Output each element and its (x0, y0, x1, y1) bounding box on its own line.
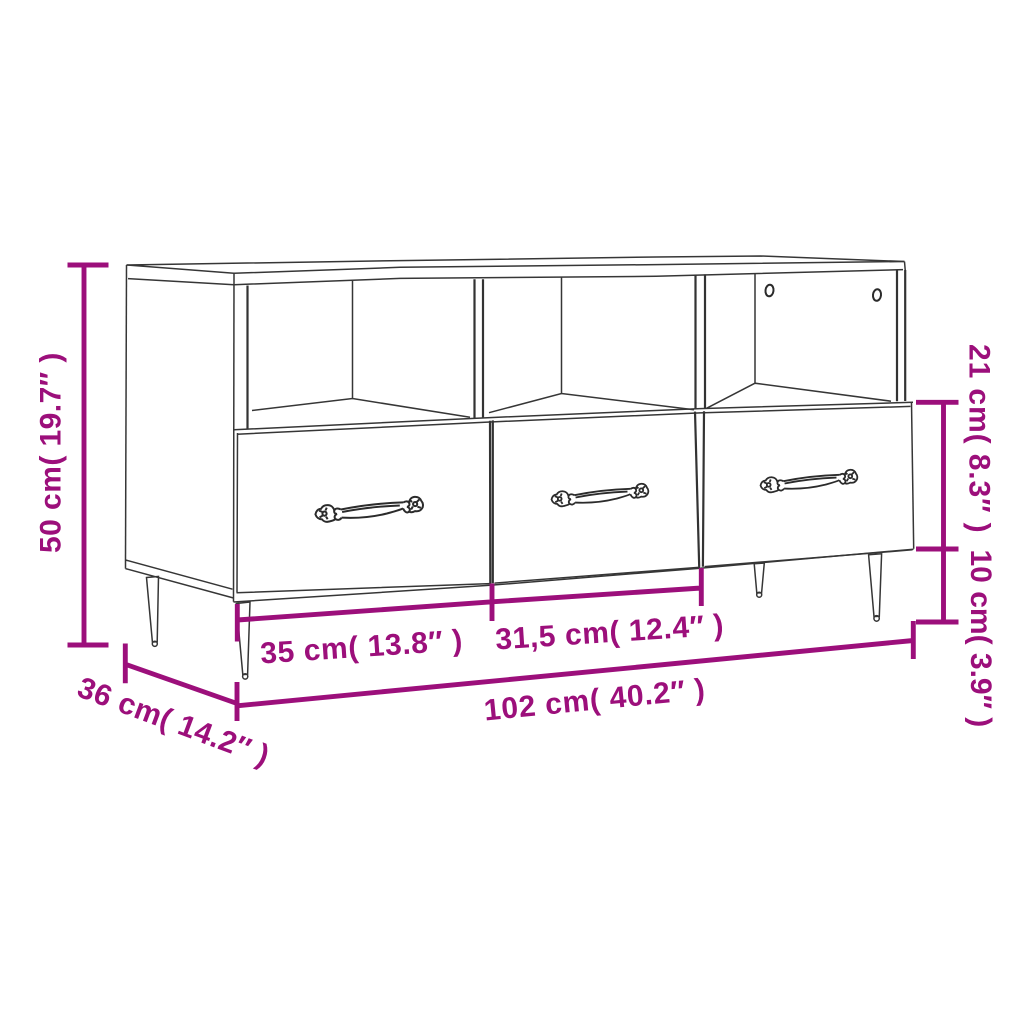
svg-text:50 cm( 19.7″ ): 50 cm( 19.7″ ) (35, 352, 68, 553)
svg-text:10 cm( 3.9″ ): 10 cm( 3.9″ ) (964, 550, 997, 728)
svg-text:21 cm( 8.3″ ): 21 cm( 8.3″ ) (963, 344, 996, 534)
